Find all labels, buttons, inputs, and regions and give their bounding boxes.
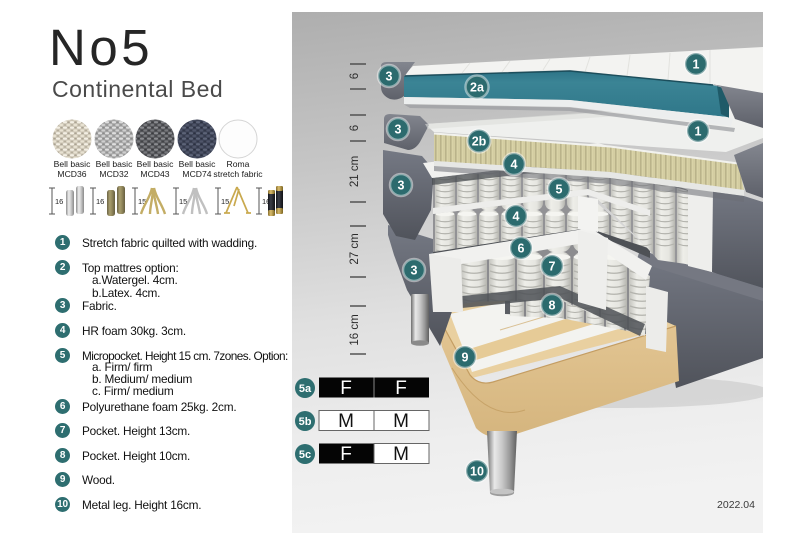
svg-text:2a: 2a (470, 81, 485, 95)
svg-text:MCD36: MCD36 (57, 169, 86, 179)
svg-text:4: 4 (513, 210, 520, 224)
svg-text:stretch fabric: stretch fabric (213, 169, 263, 179)
svg-text:2b: 2b (472, 135, 487, 149)
svg-text:MCD32: MCD32 (99, 169, 128, 179)
svg-text:1: 1 (695, 125, 702, 139)
svg-text:F: F (340, 378, 352, 399)
svg-text:F: F (340, 444, 352, 465)
svg-text:4: 4 (511, 158, 518, 172)
svg-text:3: 3 (398, 179, 405, 193)
svg-text:3: 3 (386, 70, 393, 84)
svg-text:F: F (395, 378, 407, 399)
svg-text:3: 3 (395, 123, 402, 137)
svg-text:M: M (338, 411, 354, 432)
svg-text:7: 7 (549, 260, 556, 274)
svg-text:Bell basic: Bell basic (137, 159, 174, 169)
svg-text:21 cm: 21 cm (349, 156, 361, 187)
svg-text:5a: 5a (299, 383, 312, 395)
svg-text:3: 3 (411, 264, 418, 278)
svg-text:6: 6 (349, 73, 361, 79)
svg-text:27 cm: 27 cm (349, 233, 361, 264)
svg-text:Roma: Roma (227, 159, 250, 169)
svg-text:5b: 5b (299, 416, 312, 428)
svg-text:M: M (393, 444, 409, 465)
svg-text:8: 8 (549, 299, 556, 313)
svg-text:MCD74: MCD74 (182, 169, 211, 179)
svg-text:16 cm: 16 cm (349, 314, 361, 345)
svg-text:15: 15 (221, 197, 229, 206)
svg-text:16: 16 (55, 197, 63, 206)
svg-text:M: M (393, 411, 409, 432)
svg-text:9: 9 (462, 351, 469, 365)
svg-text:2022.04: 2022.04 (717, 499, 755, 511)
svg-text:5: 5 (556, 183, 563, 197)
svg-text:Bell basic: Bell basic (179, 159, 216, 169)
svg-text:MCD43: MCD43 (140, 169, 169, 179)
svg-text:Bell basic: Bell basic (54, 159, 91, 169)
svg-text:Bell basic: Bell basic (96, 159, 133, 169)
svg-text:6: 6 (518, 242, 525, 256)
svg-text:16: 16 (96, 197, 104, 206)
svg-text:1: 1 (693, 58, 700, 72)
svg-text:6: 6 (349, 125, 361, 131)
svg-text:10: 10 (470, 465, 484, 479)
svg-text:5c: 5c (299, 449, 311, 461)
